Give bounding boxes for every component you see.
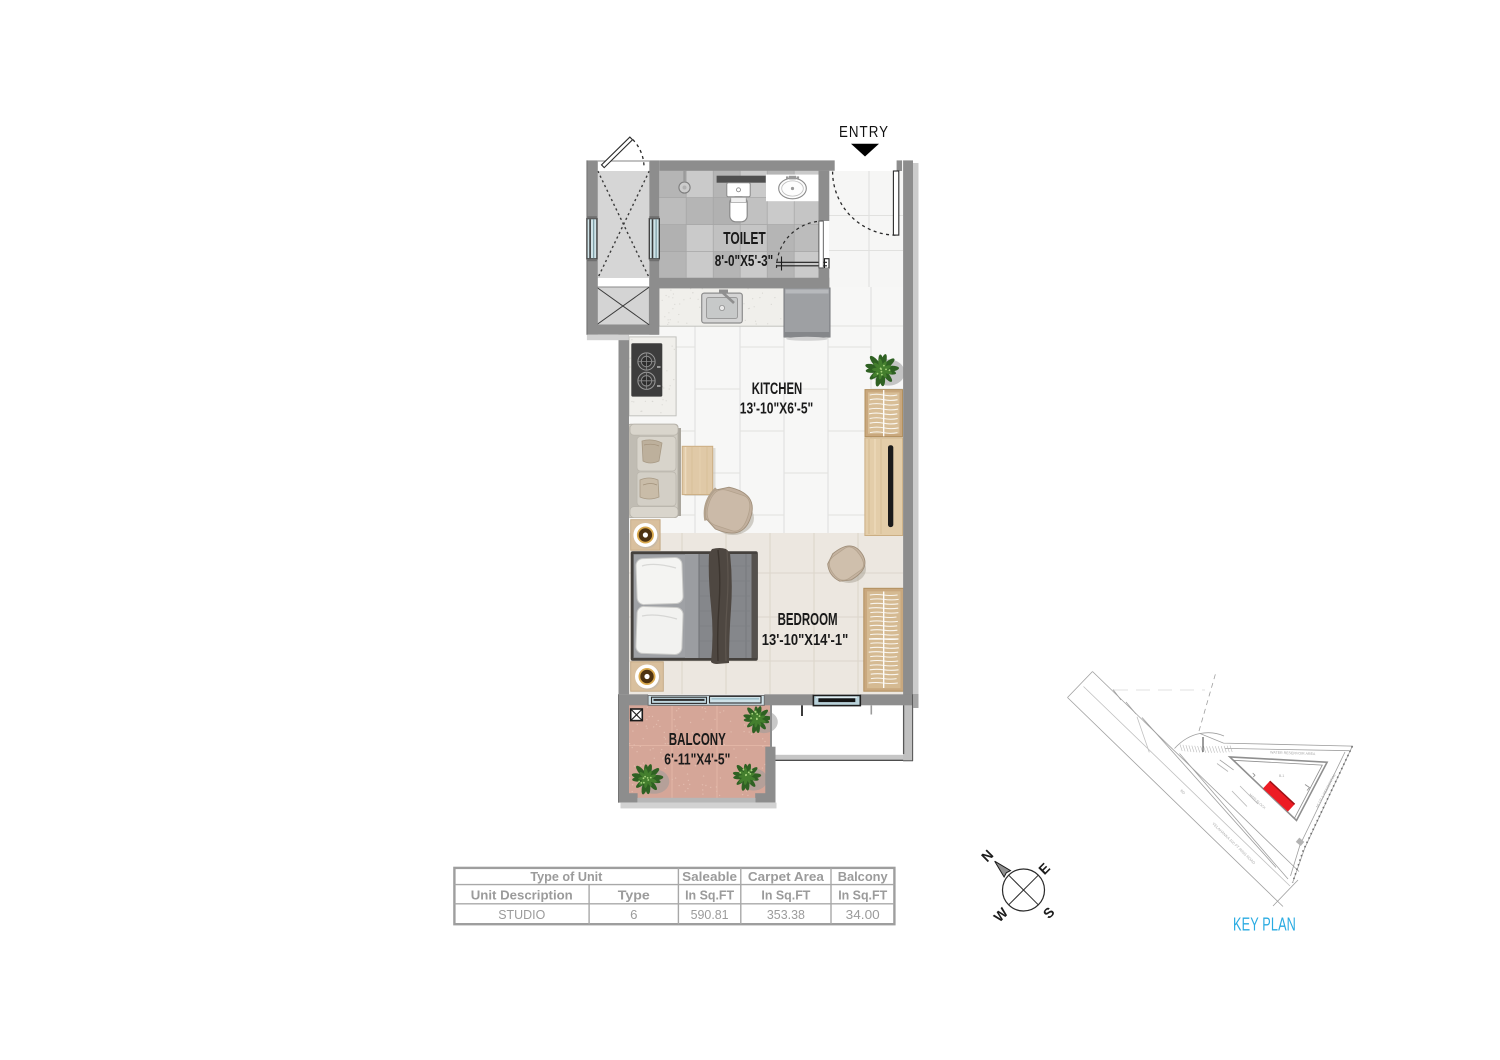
svg-text:Saleable: Saleable <box>682 869 737 884</box>
svg-text:Unit Description: Unit Description <box>471 887 573 902</box>
svg-text:BEDROOM: BEDROOM <box>778 609 838 629</box>
svg-text:13'-10"X14'-1": 13'-10"X14'-1" <box>762 632 849 649</box>
svg-text:6'-11"X4'-5": 6'-11"X4'-5" <box>664 752 730 769</box>
svg-text:6: 6 <box>630 907 637 922</box>
svg-text:TOILET: TOILET <box>723 228 766 248</box>
svg-text:Type: Type <box>618 887 650 902</box>
svg-text:KITCHEN: KITCHEN <box>752 380 803 398</box>
svg-text:ENTRY: ENTRY <box>839 124 889 141</box>
svg-text:Carpet Area: Carpet Area <box>748 869 825 884</box>
svg-text:Type of Unit: Type of Unit <box>530 869 603 884</box>
svg-text:In Sq.FT: In Sq.FT <box>685 887 734 902</box>
svg-text:8'-0"X5'-3": 8'-0"X5'-3" <box>715 253 774 270</box>
svg-text:In Sq.FT: In Sq.FT <box>838 887 887 902</box>
svg-text:B-1: B-1 <box>1279 774 1284 778</box>
svg-text:STUDIO: STUDIO <box>498 907 545 922</box>
svg-text:BALCONY: BALCONY <box>669 729 726 749</box>
svg-text:590.81: 590.81 <box>691 907 729 922</box>
svg-text:353.38: 353.38 <box>767 907 805 922</box>
svg-text:KEY PLAN: KEY PLAN <box>1233 914 1296 935</box>
svg-text:34.00: 34.00 <box>846 907 880 922</box>
svg-text:Balcony: Balcony <box>838 869 889 884</box>
svg-text:13'-10"X6'-5": 13'-10"X6'-5" <box>740 401 814 418</box>
svg-text:In Sq.FT: In Sq.FT <box>761 887 810 902</box>
